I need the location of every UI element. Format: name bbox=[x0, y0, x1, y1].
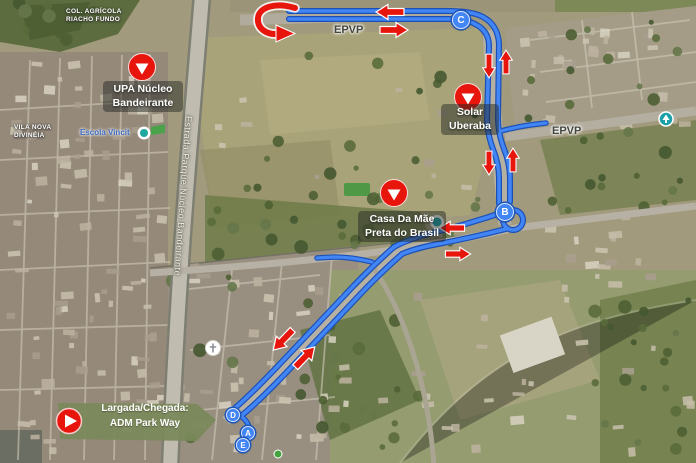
solar-label-line1: Solar bbox=[445, 106, 495, 120]
route-marker-e[interactable]: E bbox=[236, 438, 250, 452]
epvp-north-label: EPVP bbox=[334, 24, 363, 36]
upa-label[interactable]: UPA Núcleo Bandeirante bbox=[103, 81, 183, 112]
poi-pin-casa[interactable] bbox=[381, 180, 408, 207]
area-label-line: VILA NOVA bbox=[14, 124, 51, 132]
school-icon[interactable] bbox=[138, 127, 151, 140]
escola-vincit-label[interactable]: Escola Vincit bbox=[80, 128, 130, 137]
casa-label[interactable]: Casa Da Mãe Preta do Brasil bbox=[358, 211, 446, 242]
epvp-east-label: EPVP bbox=[552, 125, 581, 137]
casa-label-line1: Casa Da Mãe bbox=[362, 213, 442, 227]
route-marker-d[interactable]: D bbox=[226, 408, 240, 422]
upa-label-line1: UPA Núcleo bbox=[107, 83, 179, 97]
start-banner-line2: ADM Park Way bbox=[97, 416, 193, 431]
direction-arrow-east bbox=[380, 23, 408, 38]
poi-pin-upa[interactable] bbox=[129, 54, 156, 81]
area-label-line: DIVINÉIA bbox=[14, 132, 51, 140]
direction-arrow-east-mid bbox=[445, 247, 470, 261]
church-icon[interactable] bbox=[206, 341, 221, 356]
start-play-icon[interactable] bbox=[57, 409, 82, 434]
uturn-arrow bbox=[258, 5, 295, 42]
casa-label-line2: Preta do Brasil bbox=[362, 227, 442, 241]
area-label-col-agricola: COL. AGRÍCOLA RIACHO FUNDO bbox=[66, 8, 122, 24]
green-dot-icon[interactable] bbox=[274, 450, 282, 458]
route-marker-b[interactable]: B bbox=[496, 203, 514, 221]
upa-label-line2: Bandeirante bbox=[107, 97, 179, 111]
start-banner-line1: Largada/Chegada: bbox=[97, 401, 193, 416]
solar-label[interactable]: Solar Uberaba bbox=[441, 104, 499, 135]
solar-label-line2: Uberaba bbox=[445, 120, 495, 134]
race-route-map: COL. AGRÍCOLA RIACHO FUNDO VILA NOVA DIV… bbox=[0, 0, 696, 463]
area-label-vila-nova: VILA NOVA DIVINÉIA bbox=[14, 124, 51, 140]
area-label-line: COL. AGRÍCOLA bbox=[66, 8, 122, 16]
start-banner-text: Largada/Chegada: ADM Park Way bbox=[97, 401, 193, 431]
direction-arrow-south-upper bbox=[483, 54, 496, 78]
route-layer bbox=[0, 0, 696, 463]
park-patch bbox=[151, 124, 165, 135]
route-marker-c[interactable]: C bbox=[452, 11, 470, 29]
park-icon[interactable] bbox=[659, 112, 673, 126]
area-label-line: RIACHO FUNDO bbox=[66, 16, 122, 24]
